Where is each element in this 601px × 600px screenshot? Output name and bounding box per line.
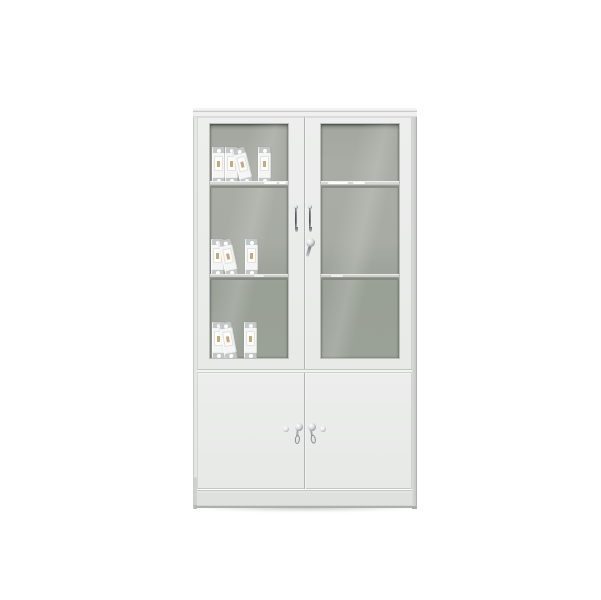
glass-pane-right bbox=[321, 124, 399, 358]
handle-shaft bbox=[309, 208, 311, 228]
handle-shaft bbox=[295, 208, 297, 228]
product-image bbox=[0, 0, 601, 600]
binder-hole bbox=[263, 149, 267, 153]
binder bbox=[244, 322, 257, 358]
binder-emblem bbox=[249, 336, 252, 342]
cabinet-top-lip bbox=[193, 108, 417, 117]
binder-label bbox=[222, 248, 234, 265]
binder-emblem bbox=[216, 253, 219, 259]
shelf-edge bbox=[210, 181, 288, 188]
lower-left-door-knob bbox=[283, 426, 289, 432]
shelf-edge bbox=[321, 274, 399, 280]
cabinet-side-right bbox=[412, 114, 417, 509]
shelf-highlight bbox=[328, 182, 348, 184]
glass-pane-left bbox=[210, 124, 288, 358]
binder-label bbox=[247, 248, 256, 263]
shelf-highlight bbox=[254, 275, 264, 277]
binder-emblem bbox=[250, 253, 253, 259]
key-bow bbox=[294, 435, 300, 444]
binder-hole bbox=[237, 149, 242, 154]
lower-door-gap bbox=[304, 373, 306, 489]
binder-label bbox=[260, 156, 269, 171]
handle-bottom-mount bbox=[295, 227, 298, 232]
binder-hole bbox=[228, 354, 233, 358]
shelf-highlight bbox=[264, 182, 277, 184]
binder bbox=[212, 147, 225, 185]
binder-hole bbox=[217, 354, 221, 358]
binder-label bbox=[222, 331, 233, 347]
binder-hole bbox=[249, 354, 253, 358]
binder-emblem bbox=[230, 161, 233, 167]
binder-label bbox=[246, 331, 255, 346]
binder-label bbox=[214, 156, 223, 171]
binder-emblem bbox=[217, 161, 220, 167]
binder-group bbox=[210, 322, 288, 358]
binder bbox=[245, 239, 258, 277]
binder-emblem bbox=[263, 161, 266, 167]
shelf-edge bbox=[210, 274, 288, 280]
shelf-highlight bbox=[279, 182, 286, 184]
binder-label bbox=[236, 156, 248, 173]
lower-door-panel bbox=[197, 373, 412, 489]
cabinet bbox=[193, 108, 417, 509]
binder-emblem bbox=[240, 161, 244, 168]
binder-hole bbox=[250, 241, 254, 245]
binder-emblem bbox=[226, 336, 230, 342]
cabinet-base bbox=[197, 490, 412, 508]
shelf-highlight bbox=[353, 182, 365, 184]
binder-emblem bbox=[217, 336, 220, 342]
binder-hole bbox=[217, 149, 221, 153]
binder bbox=[258, 147, 271, 185]
handle-bottom-mount bbox=[309, 227, 312, 232]
binder-emblem bbox=[226, 253, 230, 259]
lower-right-door-lock bbox=[308, 423, 316, 431]
binder-hole bbox=[223, 324, 228, 329]
upper-left-door-handle bbox=[294, 205, 298, 232]
binder-group bbox=[210, 239, 288, 279]
shelf-edge bbox=[321, 181, 399, 188]
binder-hole bbox=[249, 324, 253, 328]
lower-left-door-lock bbox=[295, 423, 303, 431]
upper-door-lock bbox=[306, 238, 315, 247]
upper-right-door-handle bbox=[308, 205, 312, 232]
key-bow bbox=[310, 434, 316, 444]
shelf-highlight bbox=[331, 275, 343, 277]
lower-right-door-knob bbox=[320, 426, 326, 432]
binder-hole bbox=[223, 241, 228, 246]
